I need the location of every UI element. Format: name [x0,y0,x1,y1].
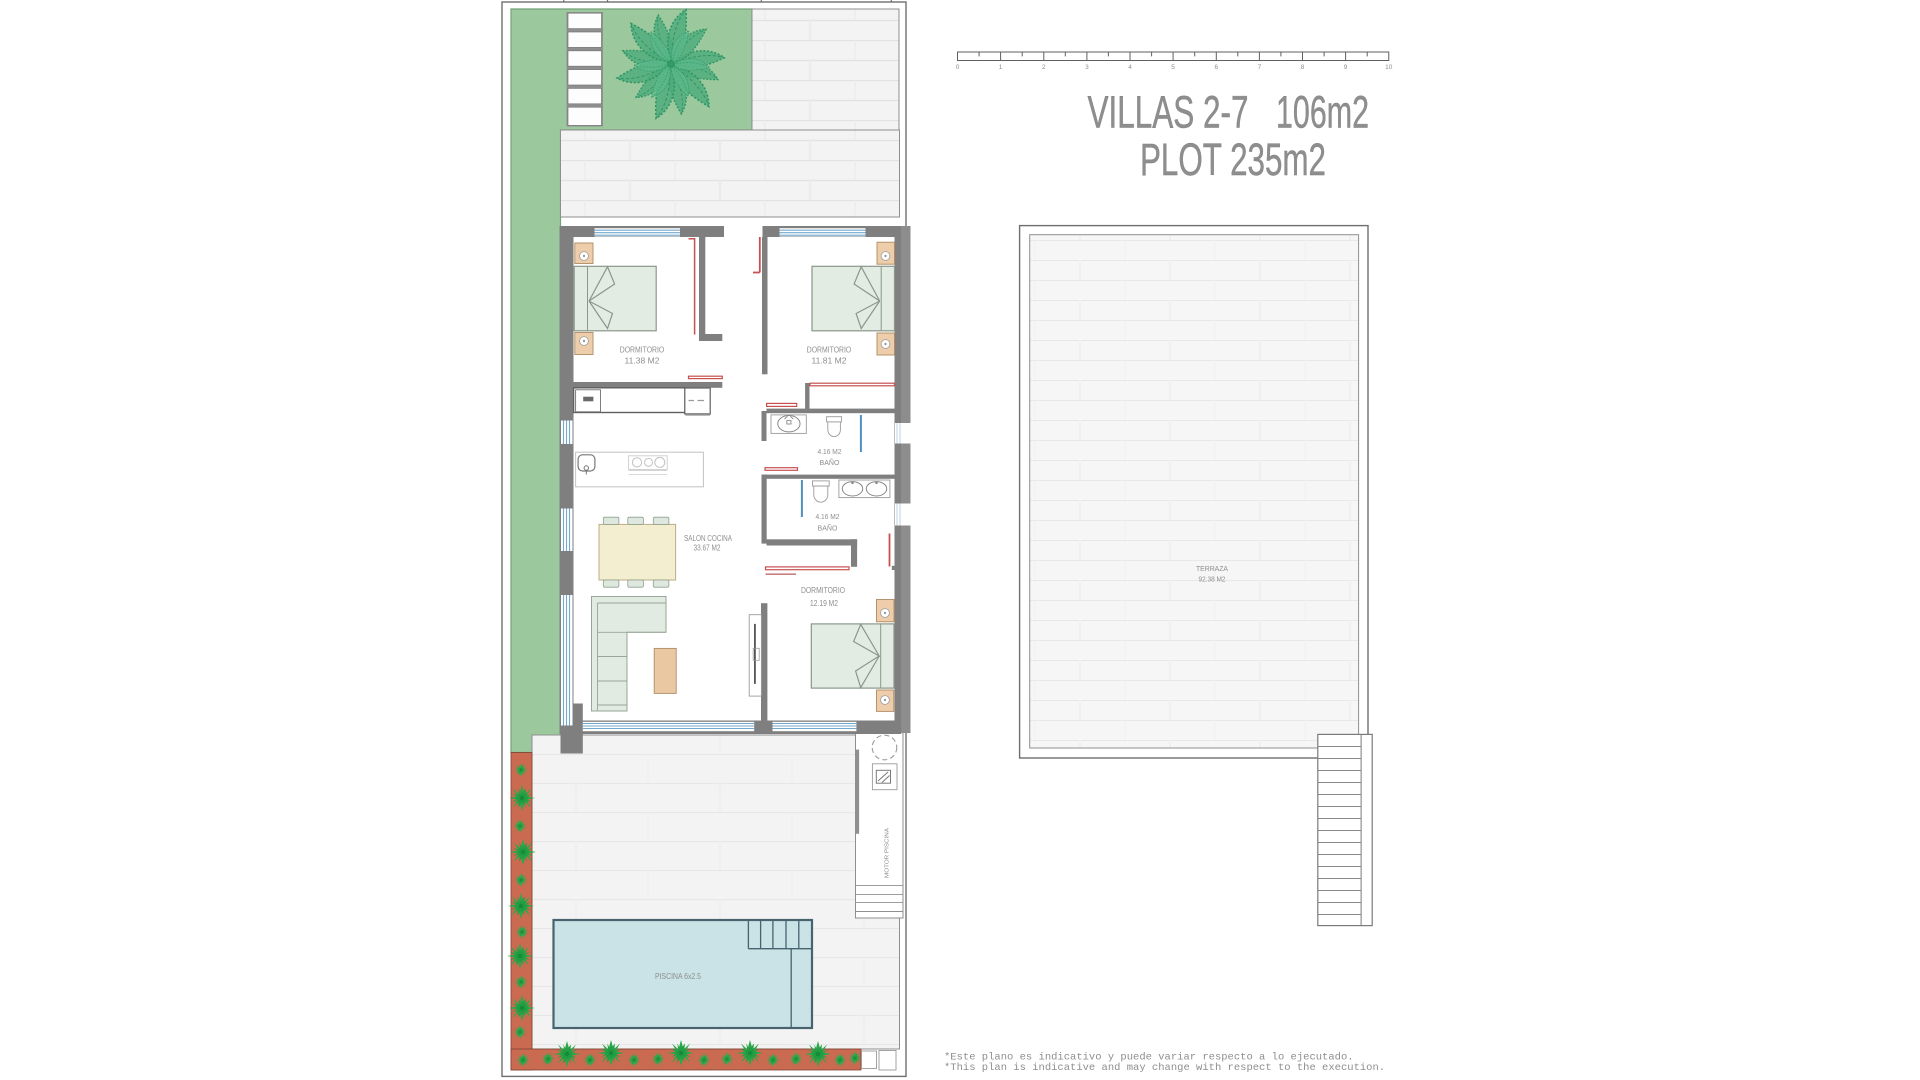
svg-text:DORMITORIO: DORMITORIO [801,586,845,595]
svg-text:DORMITORIO: DORMITORIO [807,346,852,355]
svg-text:MOTOR PISCINA: MOTOR PISCINA [885,828,891,878]
svg-text:3: 3 [1085,64,1089,71]
svg-text:12.19 M2: 12.19 M2 [810,599,838,608]
svg-text:10: 10 [1385,64,1393,71]
svg-text:6: 6 [1214,64,1218,71]
svg-text:0: 0 [956,64,960,71]
svg-text:4: 4 [1128,64,1132,71]
svg-text:PISCINA 6x2.5: PISCINA 6x2.5 [655,972,701,981]
svg-text:BAÑO: BAÑO [820,458,840,467]
svg-text:2: 2 [1042,64,1046,71]
svg-text:8: 8 [1301,64,1305,71]
svg-text:11.81 M2: 11.81 M2 [812,357,848,366]
svg-text:9: 9 [1344,64,1348,71]
svg-text:TERRAZA: TERRAZA [1196,564,1228,573]
svg-text:7: 7 [1258,64,1262,71]
svg-text:106m2: 106m2 [1276,87,1369,138]
svg-text:11.38 M2: 11.38 M2 [625,357,661,366]
svg-text:PLOT 235m2: PLOT 235m2 [1140,134,1326,185]
svg-text:BAÑO: BAÑO [818,523,838,532]
svg-text:VILLAS 2-7: VILLAS 2-7 [1088,87,1249,138]
svg-text:1: 1 [999,64,1003,71]
svg-text:5: 5 [1171,64,1175,71]
svg-text:33.67 M2: 33.67 M2 [694,544,721,553]
svg-text:*This plan is indicative and m: *This plan is indicative and may change … [944,1062,1385,1074]
svg-text:4.16 M2: 4.16 M2 [816,512,840,521]
svg-text:SALON COCINA: SALON COCINA [684,534,733,543]
svg-text:92.38 M2: 92.38 M2 [1199,575,1226,584]
svg-text:4.16 M2: 4.16 M2 [818,447,842,456]
svg-text:DORMITORIO: DORMITORIO [620,346,665,355]
